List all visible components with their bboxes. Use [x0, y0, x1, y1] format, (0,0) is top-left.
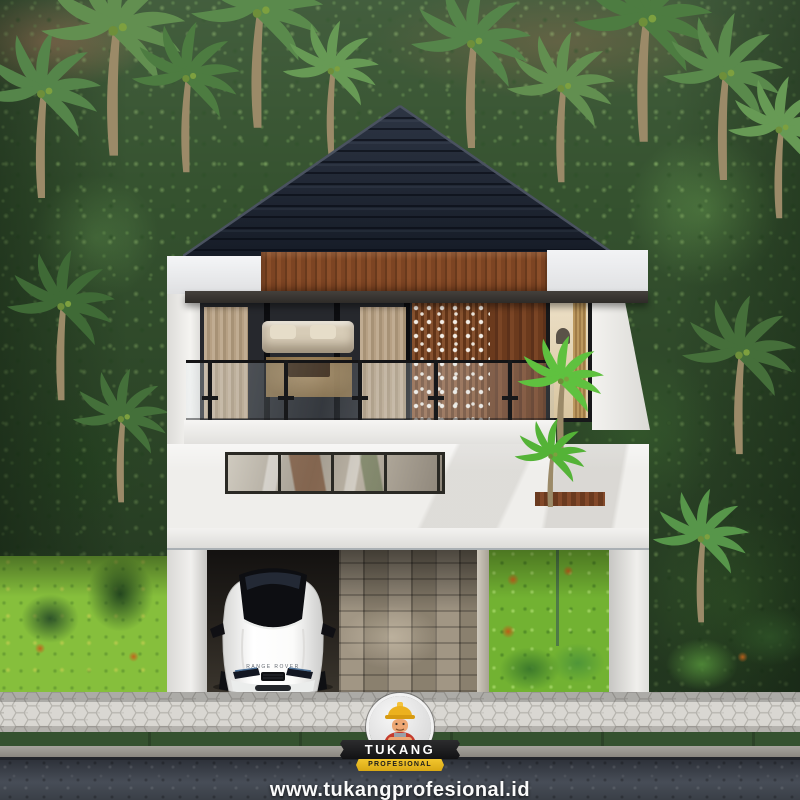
railing-post [284, 360, 288, 420]
railing-post [208, 360, 212, 420]
railing-post [358, 360, 362, 420]
railing-post [434, 360, 438, 420]
courtyard-palm [498, 322, 628, 507]
car: RANGE ROVER [205, 545, 341, 693]
garden-curb [477, 548, 489, 692]
paver-floor [339, 548, 477, 692]
logo-badge: TUKANG PROFESIONAL [320, 696, 480, 772]
awning [185, 291, 648, 303]
watermark: TUKANG PROFESIONAL www.tukangprofesional… [0, 696, 800, 800]
carport-column [167, 548, 207, 692]
architectural-render: RANGE ROVER [0, 0, 800, 800]
front-garden [0, 556, 167, 692]
hip-roof [183, 104, 617, 266]
builder-mascot-icon [375, 700, 425, 746]
wood-fascia [261, 252, 549, 294]
grille [261, 672, 285, 681]
brand-sub-ribbon: PROFESIONAL [356, 759, 444, 771]
website-text: www.tukangprofesional.id [0, 779, 800, 800]
brand-ribbon: TUKANG [340, 740, 460, 759]
skylight [225, 452, 445, 494]
inner-garden [489, 548, 609, 692]
right-interior-wall [609, 548, 649, 692]
side-garden [649, 600, 800, 692]
eave-band-left [167, 256, 264, 294]
interior-sofa [262, 321, 354, 353]
